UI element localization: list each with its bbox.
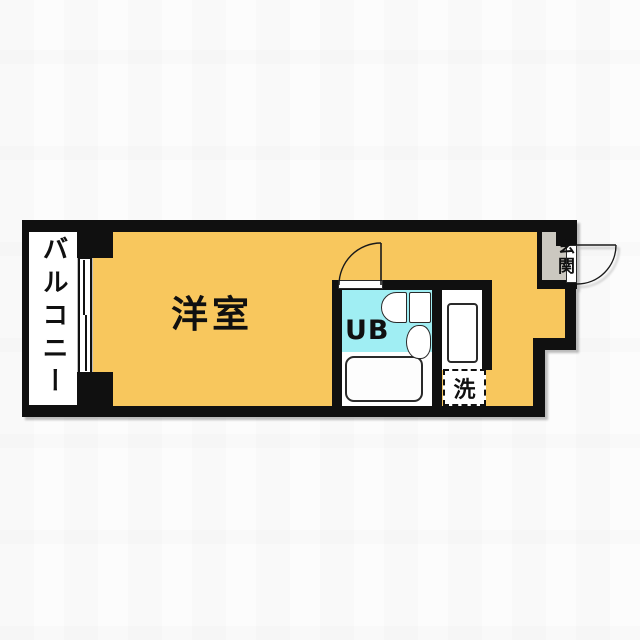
entrance-door-arc — [577, 245, 616, 284]
toilet-bowl — [406, 325, 431, 359]
wall-right-lower — [533, 338, 545, 417]
wall-bath-left — [332, 280, 342, 407]
floor-plan: 洗 バルコニー 洋室 UB 玄関 — [0, 0, 640, 640]
western-room-floor — [93, 232, 565, 406]
balcony-label: バルコニー — [37, 235, 69, 405]
laundry-label: 洗 — [453, 372, 475, 404]
bathtub — [345, 356, 423, 402]
balcony-window — [78, 257, 92, 374]
wall-entrance-left — [537, 232, 542, 280]
toilet-tank — [409, 292, 431, 323]
wall-bath-divider — [432, 280, 442, 407]
unit-bath-label: UB — [345, 317, 390, 344]
window-pane-line — [83, 260, 85, 315]
wall-balcony-left — [22, 220, 29, 417]
wall-bottom — [22, 406, 545, 417]
utility-unit — [447, 303, 478, 363]
floor-plan-page: { "plan": { "type": "apartment-floor-pla… — [0, 0, 640, 640]
window-pane-line — [85, 315, 87, 371]
washing-machine-space: 洗 — [443, 369, 486, 406]
bath-door-threshold — [338, 280, 383, 289]
wall-utility-right — [482, 280, 492, 370]
western-room-label: 洋室 — [171, 296, 253, 333]
entrance-label: 玄関 — [546, 237, 572, 281]
wall-pier-top-left — [77, 220, 113, 258]
